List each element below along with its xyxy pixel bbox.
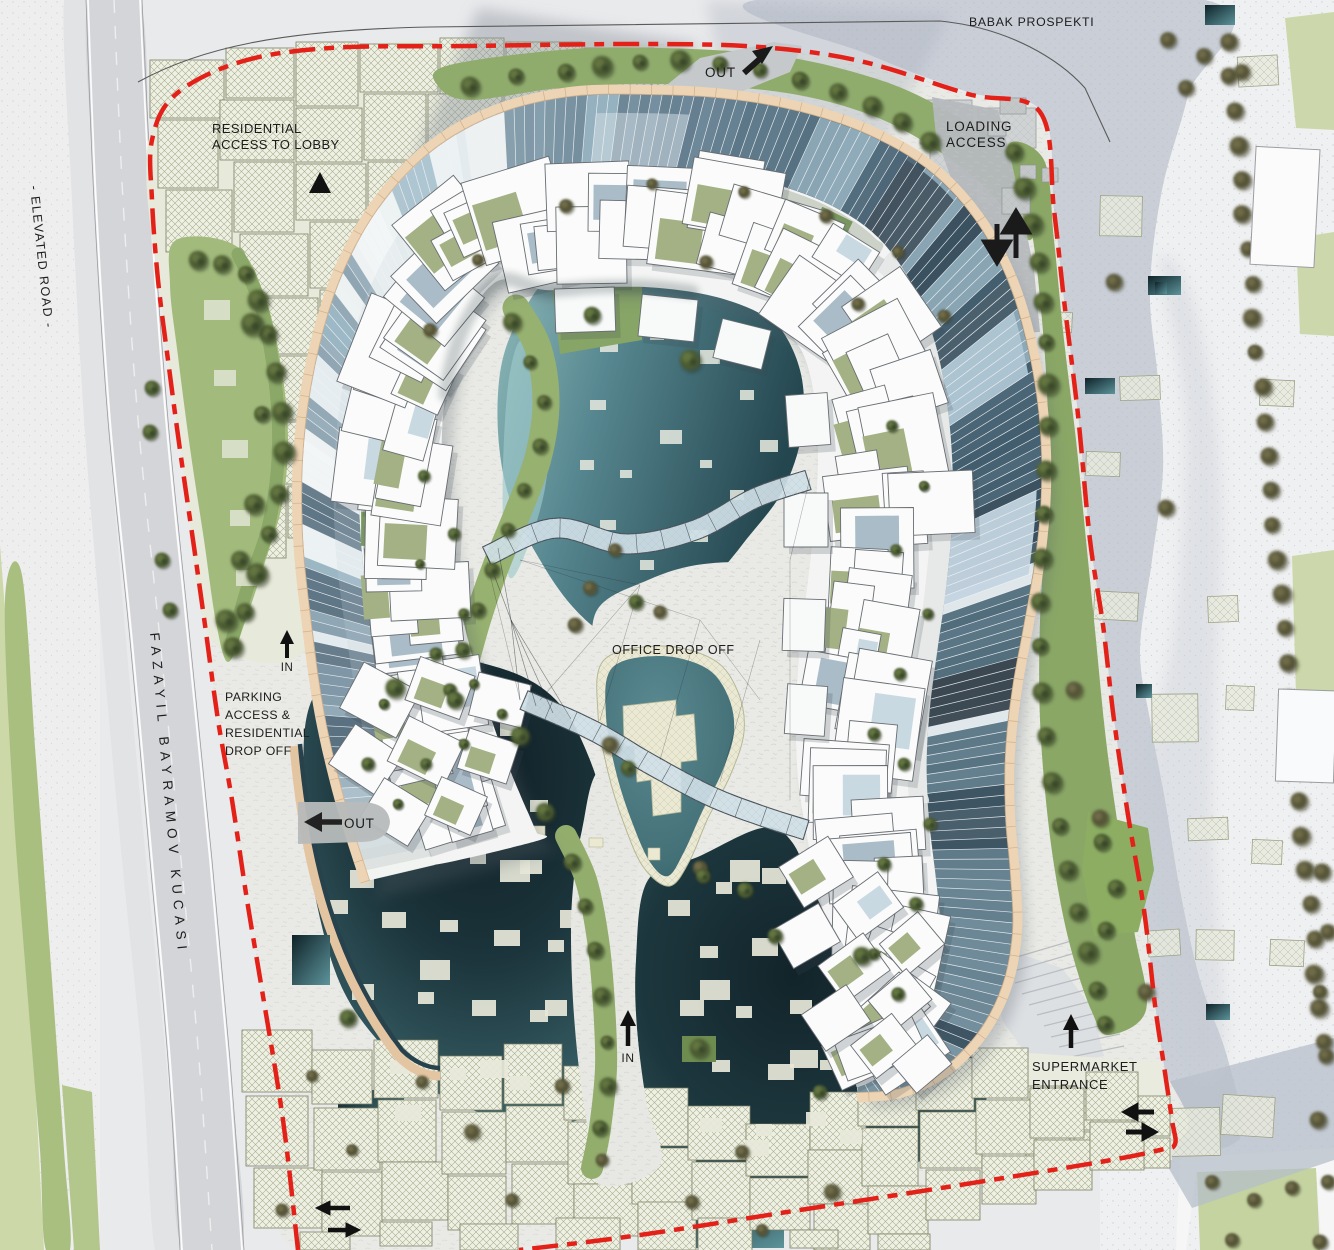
svg-text:DROP OFF: DROP OFF	[225, 744, 292, 758]
svg-text:ACCESS &: ACCESS &	[225, 708, 291, 722]
svg-text:LOADING: LOADING	[946, 119, 1012, 134]
svg-text:OFFICE DROP OFF: OFFICE DROP OFF	[612, 643, 735, 657]
svg-text:SUPERMARKET: SUPERMARKET	[1032, 1059, 1138, 1074]
svg-text:IN: IN	[621, 1051, 634, 1065]
svg-text:RESIDENTIAL: RESIDENTIAL	[212, 121, 302, 136]
svg-text:ACCESS: ACCESS	[946, 135, 1006, 150]
svg-text:BABAK PROSPEKTI: BABAK PROSPEKTI	[969, 15, 1094, 29]
svg-text:RESIDENTIAL: RESIDENTIAL	[225, 726, 310, 740]
svg-text:PARKING: PARKING	[225, 690, 282, 704]
svg-text:ENTRANCE: ENTRANCE	[1032, 1077, 1108, 1092]
svg-text:OUT: OUT	[344, 816, 375, 831]
svg-text:OUT: OUT	[705, 65, 736, 80]
svg-text:IN: IN	[281, 662, 294, 674]
svg-text:ACCESS TO LOBBY: ACCESS TO LOBBY	[212, 137, 340, 152]
